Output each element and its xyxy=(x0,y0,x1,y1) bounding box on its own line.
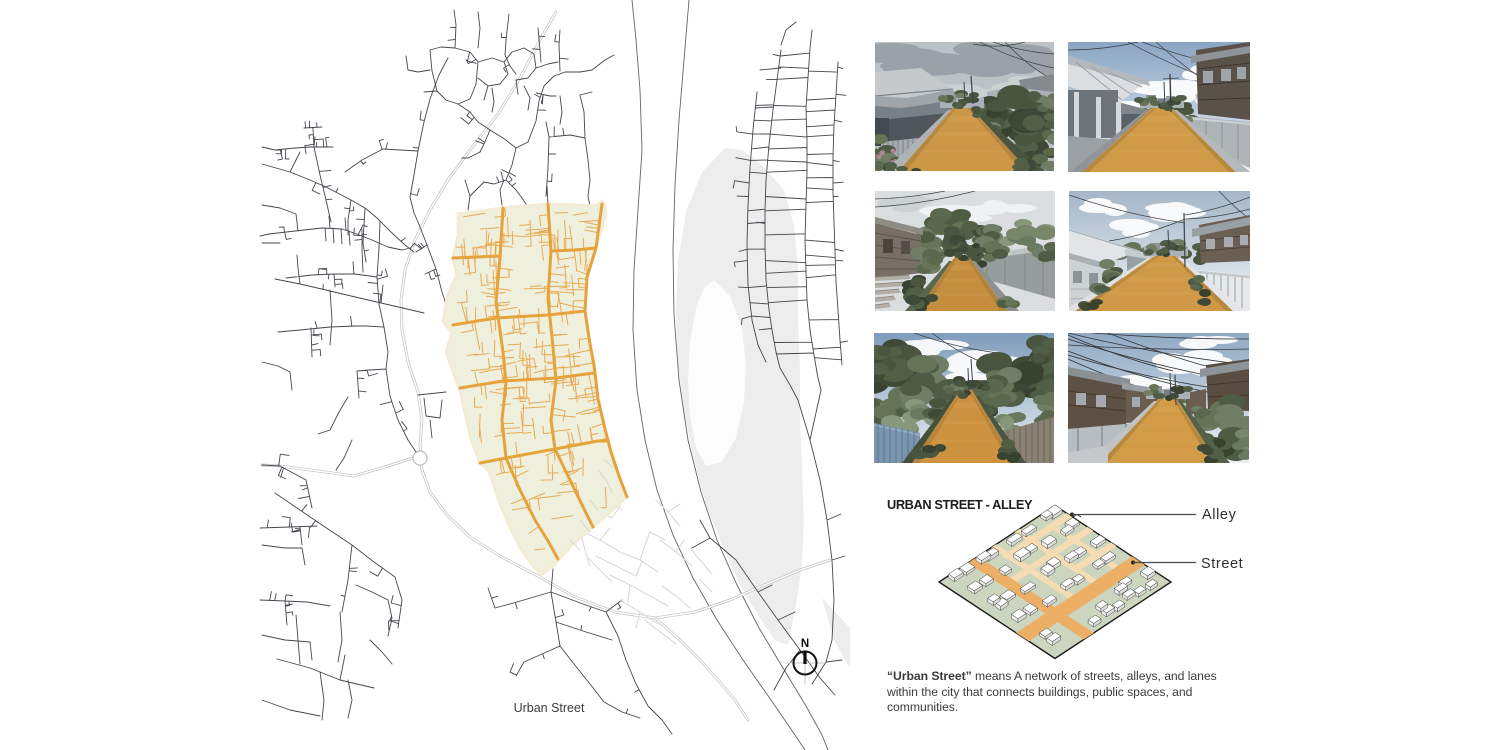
svg-text:Urban Street: Urban Street xyxy=(514,701,585,715)
svg-text:N: N xyxy=(801,638,809,650)
